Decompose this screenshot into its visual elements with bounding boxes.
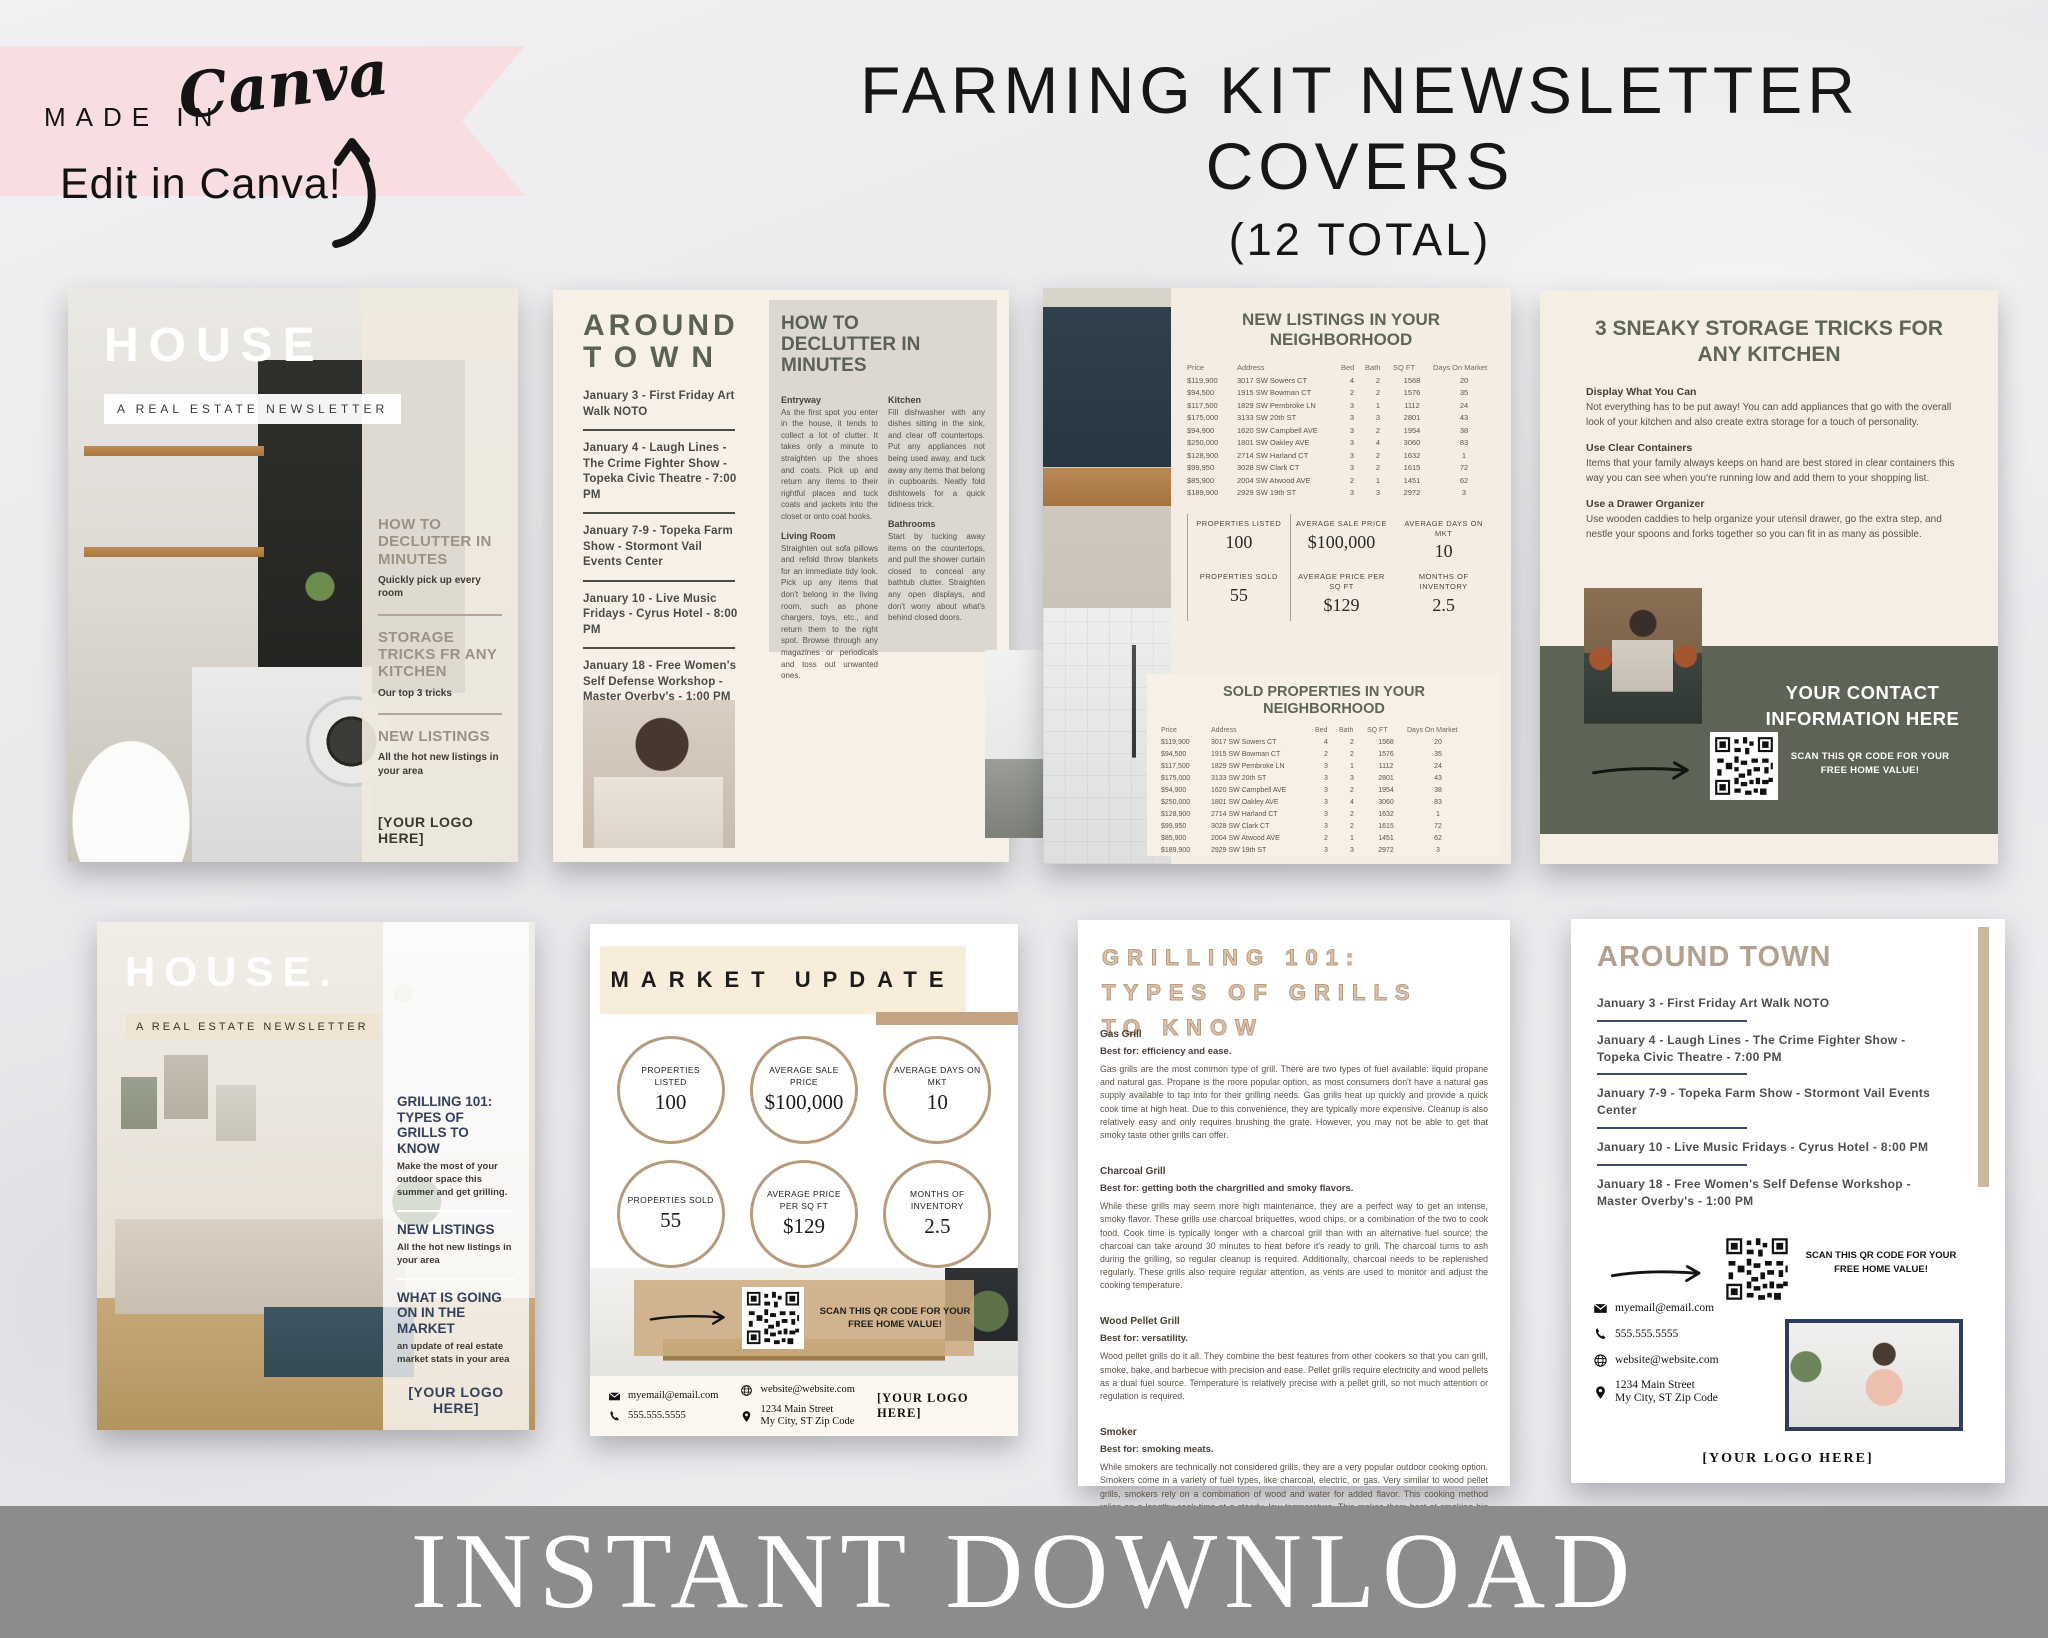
- cell-address: 3028 SW Clark CT: [1211, 821, 1313, 833]
- contact-footer: myemail@email.com 555.555.5555 website@w…: [590, 1376, 1018, 1436]
- stat-value: 10: [927, 1090, 948, 1115]
- listing-title: FARMING KIT NEWSLETTER COVERS: [740, 52, 1980, 204]
- article-columns: Entryway As the first spot you enter in …: [781, 387, 985, 682]
- divider: [583, 647, 735, 649]
- cell-price: $250,000: [1187, 437, 1235, 450]
- tip-body: Items that your family always keeps on h…: [1586, 456, 1958, 486]
- section-heading: Kitchen: [888, 395, 985, 405]
- cell-bed: 3: [1341, 437, 1363, 450]
- event-item: January 4 - Laugh Lines - The Crime Figh…: [583, 441, 743, 514]
- newsletter-page-storage-tricks: 3 SNEAKY STORAGE TRICKS FOR ANY KITCHEN …: [1540, 290, 1998, 864]
- table-row: $99,950 3028 SW Clark CT 3 2 1615 72: [1187, 462, 1495, 475]
- contact-website: website@website.com: [740, 1384, 855, 1397]
- stat-label: AVERAGE DAYS ON MKT: [894, 1065, 981, 1087]
- article-title: HOW TO DECLUTTER IN MINUTES: [781, 314, 969, 377]
- cell-bath: 2: [1365, 450, 1391, 463]
- table-row: $117,500 1829 SW Pembroke LN 3 1 1112 24: [1161, 761, 1487, 773]
- table-row: $128,900 2714 SW Harland CT 3 2 1632 1: [1161, 809, 1487, 821]
- canva-logo-script: Canva: [174, 35, 392, 133]
- qr-caption: SCAN THIS QR CODE FOR YOUR FREE HOME VAL…: [1799, 1249, 1963, 1277]
- cover-sidebar-overlay: GRILLING 101: TYPES OF GRILLS TO KNOW Ma…: [383, 922, 529, 1430]
- event-text: January 3 - First Friday Art Walk NOTO: [583, 389, 743, 420]
- event-text: January 10 - Live Music Fridays - Cyrus …: [1597, 1139, 1949, 1156]
- email-text: myemail@email.com: [628, 1390, 718, 1402]
- cell-sqft: 2972: [1393, 487, 1431, 500]
- edit-in-canva-label: Edit in Canva!: [60, 160, 342, 209]
- grill-best-for: Best for: getting both the chargrilled a…: [1100, 1183, 1488, 1194]
- cell-address: 2004 SW Atwood AVE: [1211, 833, 1313, 845]
- cell-price: $128,900: [1187, 450, 1235, 463]
- map-pin-icon: [740, 1410, 753, 1423]
- map-pin-icon: [1593, 1385, 1608, 1400]
- teaser-heading: NEW LISTINGS: [397, 1222, 515, 1238]
- stat-label: AVERAGE SALE PRICE: [1295, 519, 1389, 529]
- masthead: HOUSE.: [125, 948, 340, 996]
- cell-days: 1: [1433, 450, 1495, 463]
- instant-download-banner: INSTANT DOWNLOAD: [0, 1506, 2048, 1638]
- cell-days: 83: [1407, 797, 1469, 809]
- stat-circle: MONTHS OF INVENTORY 2.5: [883, 1160, 991, 1268]
- cell-days: 72: [1407, 821, 1469, 833]
- stat-label: AVERAGE PRICE PER SQ FT: [1295, 572, 1389, 592]
- contact-banner: YOUR CONTACT INFORMATION HERE: [1745, 680, 1980, 732]
- sidebar-teaser: STORAGE TRICKS FR ANY KITCHEN Our top 3 …: [378, 629, 502, 715]
- cell-price: $94,500: [1161, 749, 1209, 761]
- cell-price: $128,900: [1161, 809, 1209, 821]
- newsletter-cover-declutter: HOW TO DECLUTTER IN MINUTES Quickly pick…: [68, 288, 518, 862]
- cell-days: 24: [1433, 400, 1495, 413]
- cell-bath: 2: [1339, 821, 1365, 833]
- banner-line2: INFORMATION HERE: [1745, 706, 1980, 732]
- section-body: As the first spot you enter in the house…: [781, 407, 878, 523]
- column-header: Price: [1187, 361, 1235, 375]
- cell-address: 1829 SW Pembroke LN: [1237, 400, 1339, 413]
- grill-heading: Charcoal Grill: [1100, 1166, 1488, 1177]
- cell-address: 3017 SW Sowers CT: [1211, 737, 1313, 749]
- cell-bath: 3: [1365, 412, 1391, 425]
- divider: [1597, 1164, 1747, 1166]
- stat-label: PROPERTIES SOLD: [627, 1195, 714, 1206]
- teaser-heading: STORAGE TRICKS FR ANY KITCHEN: [378, 629, 502, 681]
- cell-bed: 3: [1315, 773, 1337, 785]
- stat-circle: PROPERTIES LISTED 100: [617, 1036, 725, 1144]
- cell-days: 20: [1433, 375, 1495, 388]
- cell-bed: 3: [1315, 797, 1337, 809]
- table-row: $250,000 1801 SW Oakley AVE 3 4 3060 83: [1187, 437, 1495, 450]
- cell-address: 1829 SW Pembroke LN: [1211, 761, 1313, 773]
- contact-phone: 555.555.5555: [1593, 1327, 1793, 1342]
- contact-phone: 555.555.5555: [608, 1410, 718, 1423]
- stat-label: PROPERTIES LISTED: [627, 1065, 714, 1087]
- teaser-subtext: an update of real estate market stats in…: [397, 1341, 515, 1367]
- email-text: myemail@email.com: [1615, 1302, 1714, 1315]
- cell-address: 1801 SW Oakley AVE: [1237, 437, 1339, 450]
- events-column: AROUND TOWN January 3 - First Friday Art…: [553, 290, 763, 862]
- newsletter-page-market-update: MARKET UPDATE PROPERTIES LISTED 100 AVER…: [590, 924, 1018, 1436]
- cell-sqft: 3060: [1367, 797, 1405, 809]
- cell-bath: 1: [1365, 400, 1391, 413]
- stat-value: 55: [1192, 585, 1286, 606]
- event-text: January 3 - First Friday Art Walk NOTO: [1597, 995, 1949, 1012]
- tip-heading: Use a Drawer Organizer: [1586, 498, 1958, 510]
- article-section: Kitchen Fill dishwasher with any dishes …: [888, 395, 985, 511]
- stat-circle: AVERAGE PRICE PER SQ FT $129: [750, 1160, 858, 1268]
- grill-section: Charcoal Grill Best for: getting both th…: [1078, 1157, 1510, 1301]
- column-header: SQ FT: [1393, 361, 1431, 375]
- cell-bath: 2: [1365, 425, 1391, 438]
- new-listings-table: PriceAddressBedBathSQ FTDays On Market $…: [1187, 361, 1495, 500]
- globe-icon: [740, 1384, 753, 1397]
- cell-price: $117,500: [1161, 761, 1209, 773]
- cell-price: $94,900: [1187, 425, 1235, 438]
- contact-list: myemail@email.com 555.555.5555 website@w…: [1593, 1301, 1793, 1405]
- event-text: January 7-9 - Topeka Farm Show - Stormon…: [1597, 1085, 1949, 1119]
- stat-label: MONTHS OF INVENTORY: [894, 1189, 981, 1211]
- cell-address: 2004 SW Atwood AVE: [1237, 475, 1339, 488]
- tip-heading: Use Clear Containers: [1586, 442, 1958, 454]
- cell-price: $175,000: [1161, 773, 1209, 785]
- cell-price: $119,900: [1187, 375, 1235, 388]
- teaser-subtext: Our top 3 tricks: [378, 687, 502, 701]
- column-header: Bath: [1365, 361, 1391, 375]
- cell-bath: 3: [1339, 773, 1365, 785]
- cell-address: 1620 SW Campbell AVE: [1237, 425, 1339, 438]
- sidebar-teaser: HOW TO DECLUTTER IN MINUTES Quickly pick…: [378, 516, 502, 616]
- grill-body: While these grills may seem more high ma…: [1100, 1200, 1488, 1292]
- cell-bed: 3: [1341, 400, 1363, 413]
- divider: [378, 713, 502, 715]
- qr-code: [742, 1287, 804, 1349]
- stat-circle: PROPERTIES SOLD 55: [617, 1160, 725, 1268]
- sold-properties-table: PriceAddressBedBathSQ FTDays On Market $…: [1161, 725, 1487, 857]
- cell-bath: 2: [1365, 387, 1391, 400]
- event-text: January 7-9 - Topeka Farm Show - Stormon…: [583, 524, 743, 571]
- section-heading: Bathrooms: [888, 519, 985, 529]
- newsletter-page-around-town-contact: AROUND TOWN January 3 - First Friday Art…: [1571, 919, 2005, 1483]
- cell-days: 62: [1407, 833, 1469, 845]
- divider: [583, 512, 735, 514]
- cell-price: $85,900: [1187, 475, 1235, 488]
- stat-item: PROPERTIES SOLD 55: [1187, 567, 1290, 621]
- cell-bath: 2: [1339, 749, 1365, 761]
- cell-price: $94,500: [1187, 387, 1235, 400]
- divider: [1597, 1020, 1747, 1022]
- cell-sqft: 1632: [1393, 450, 1431, 463]
- events-list: January 3 - First Friday Art Walk NOTO J…: [1597, 995, 1949, 1209]
- address-line1: 1234 Main Street: [1615, 1379, 1695, 1391]
- tip-item: Display What You Can Not everything has …: [1586, 386, 1958, 430]
- cell-bed: 3: [1315, 809, 1337, 821]
- teaser-subtext: All the hot new listings in your area: [397, 1242, 515, 1268]
- cell-sqft: 1568: [1367, 737, 1405, 749]
- cell-days: 62: [1433, 475, 1495, 488]
- table-row: $189,900 2929 SW 19th ST 3 3 2972 3: [1161, 845, 1487, 857]
- address-line1: 1234 Main Street: [760, 1404, 833, 1415]
- sidebar-teaser: NEW LISTINGS All the hot new listings in…: [397, 1222, 515, 1280]
- event-text: January 4 - Laugh Lines - The Crime Figh…: [583, 441, 743, 503]
- cell-bath: 1: [1339, 833, 1365, 845]
- article-section: Entryway As the first spot you enter in …: [781, 395, 878, 523]
- contact-email: myemail@email.com: [1593, 1301, 1793, 1316]
- cell-address: 1915 SW Bowman CT: [1211, 749, 1313, 761]
- table-row: $94,500 1915 SW Bowman CT 2 2 1576 35: [1187, 387, 1495, 400]
- curved-arrow-icon: [318, 132, 388, 252]
- sidebar-teaser: NEW LISTINGS All the hot new listings in…: [378, 728, 502, 778]
- cell-address: 3017 SW Sowers CT: [1237, 375, 1339, 388]
- grill-section: Wood Pellet Grill Best for: versatility.…: [1078, 1307, 1510, 1412]
- event-item: January 10 - Live Music Fridays - Cyrus …: [1597, 1139, 1949, 1166]
- cell-bed: 3: [1315, 785, 1337, 797]
- table-row: $117,500 1829 SW Pembroke LN 3 1 1112 24: [1187, 400, 1495, 413]
- qr-caption: SCAN THIS QR CODE FOR YOUR FREE HOME VAL…: [1786, 750, 1954, 778]
- column-header: Bath: [1339, 725, 1365, 737]
- table-body: $119,900 3017 SW Sowers CT 4 2 1568 20 $…: [1187, 375, 1495, 500]
- tagline-banner: A REAL ESTATE NEWSLETTER: [104, 394, 401, 424]
- cell-bath: 1: [1339, 761, 1365, 773]
- sidebar-teaser: GRILLING 101: TYPES OF GRILLS TO KNOW Ma…: [397, 1094, 515, 1212]
- column-header: Address: [1211, 725, 1313, 737]
- table-row: $175,000 3133 SW 20th ST 3 3 2801 43: [1161, 773, 1487, 785]
- article-col-1: Entryway As the first spot you enter in …: [781, 387, 878, 682]
- logo-placeholder: [YOUR LOGO HERE]: [877, 1391, 1000, 1421]
- table-row: $119,900 3017 SW Sowers CT 4 2 1568 20: [1161, 737, 1487, 749]
- grill-best-for: Best for: efficiency and ease.: [1100, 1046, 1488, 1057]
- cell-address: 3133 SW 20th ST: [1237, 412, 1339, 425]
- event-item: January 3 - First Friday Art Walk NOTO: [583, 389, 743, 431]
- cell-address: 2929 SW 19th ST: [1211, 845, 1313, 857]
- cell-sqft: 1954: [1367, 785, 1405, 797]
- cell-bath: 3: [1365, 487, 1391, 500]
- tip-body: Use wooden caddies to help organize your…: [1586, 512, 1958, 542]
- stat-label: AVERAGE DAYS ON MKT: [1396, 519, 1491, 539]
- cell-sqft: 2801: [1367, 773, 1405, 785]
- sidebar-teaser: WHAT IS GOING ON IN THE MARKET an update…: [397, 1290, 515, 1367]
- woman-laptop-photo: [583, 700, 735, 848]
- newsletter-cover-grilling: GRILLING 101: TYPES OF GRILLS TO KNOW Ma…: [97, 922, 535, 1430]
- teaser-subtext: Make the most of your outdoor space this…: [397, 1161, 515, 1199]
- event-item: January 4 - Laugh Lines - The Crime Figh…: [1597, 1032, 1949, 1076]
- tip-heading: Display What You Can: [1586, 386, 1958, 398]
- phone-icon: [608, 1410, 621, 1423]
- instant-download-text: INSTANT DOWNLOAD: [411, 1510, 1637, 1634]
- cell-price: $117,500: [1187, 400, 1235, 413]
- table-row: $119,900 3017 SW Sowers CT 4 2 1568 20: [1187, 375, 1495, 388]
- logo-placeholder: [YOUR LOGO HERE]: [1571, 1451, 2005, 1467]
- cell-price: $85,900: [1161, 833, 1209, 845]
- cell-bath: 2: [1339, 785, 1365, 797]
- table-row: $128,900 2714 SW Harland CT 3 2 1632 1: [1187, 450, 1495, 463]
- around-town-heading: AROUND TOWN: [583, 310, 763, 373]
- events-list: January 3 - First Friday Art Walk NOTO J…: [583, 389, 743, 706]
- event-text: January 10 - Live Music Fridays - Cyrus …: [583, 592, 743, 639]
- teaser-heading: WHAT IS GOING ON IN THE MARKET: [397, 1290, 515, 1337]
- agent-photo: [1785, 1319, 1963, 1431]
- address-text: 1234 Main StreetMy City, ST Zip Code: [1615, 1379, 1718, 1405]
- agent-photo: [1584, 588, 1702, 724]
- sidebar-teaser-list: HOW TO DECLUTTER IN MINUTES Quickly pick…: [378, 516, 502, 778]
- teaser-subtext: All the hot new listings in your area: [378, 751, 502, 778]
- arrow-icon: [1609, 1261, 1709, 1287]
- table-row: $99,950 3028 SW Clark CT 3 2 1615 72: [1161, 821, 1487, 833]
- contact-address: 1234 Main StreetMy City, ST Zip Code: [740, 1404, 855, 1428]
- cell-days: 3: [1407, 845, 1469, 857]
- grill-best-for: Best for: versatility.: [1100, 1333, 1488, 1344]
- qr-code: [1721, 1233, 1793, 1305]
- table-row: $175,000 3133 SW 20th ST 3 3 2801 43: [1187, 412, 1495, 425]
- table-row: $250,000 1801 SW Oakley AVE 3 4 3060 83: [1161, 797, 1487, 809]
- stat-item: AVERAGE DAYS ON MKT 10: [1392, 514, 1495, 568]
- cell-bath: 2: [1365, 375, 1391, 388]
- stat-circle: AVERAGE SALE PRICE $100,000: [750, 1036, 858, 1144]
- stat-value: $100,000: [1295, 532, 1389, 553]
- grill-heading: Smoker: [1100, 1427, 1488, 1438]
- column-header: Days On Market: [1433, 361, 1495, 375]
- divider: [1597, 1127, 1747, 1129]
- article-col-2: Kitchen Fill dishwasher with any dishes …: [888, 387, 985, 682]
- stat-label: AVERAGE PRICE PER SQ FT: [761, 1189, 848, 1211]
- stat-value: 100: [1192, 532, 1286, 553]
- cell-bath: 2: [1365, 462, 1391, 475]
- cell-bath: 3: [1339, 845, 1365, 857]
- cell-sqft: 1615: [1367, 821, 1405, 833]
- envelope-icon: [1593, 1301, 1608, 1316]
- cell-sqft: 2972: [1367, 845, 1405, 857]
- arrow-icon: [1590, 758, 1698, 784]
- cell-sqft: 1632: [1367, 809, 1405, 821]
- cell-days: 3: [1433, 487, 1495, 500]
- cell-sqft: 1451: [1367, 833, 1405, 845]
- banner-line1: YOUR CONTACT: [1745, 680, 1980, 706]
- cell-bed: 3: [1341, 487, 1363, 500]
- table-row: $94,900 1620 SW Campbell AVE 3 2 1954 38: [1161, 785, 1487, 797]
- table-header-row: PriceAddressBedBathSQ FTDays On Market: [1161, 725, 1487, 737]
- stat-value: 55: [660, 1208, 681, 1233]
- cell-days: 20: [1407, 737, 1469, 749]
- cell-price: $175,000: [1187, 412, 1235, 425]
- column-header: Address: [1237, 361, 1339, 375]
- stat-label: PROPERTIES LISTED: [1192, 519, 1286, 529]
- event-text: January 4 - Laugh Lines - The Crime Figh…: [1597, 1032, 1949, 1066]
- cell-bed: 3: [1341, 412, 1363, 425]
- listing-subtitle: (12 TOTAL): [740, 214, 1980, 266]
- cell-days: 38: [1433, 425, 1495, 438]
- phone-text: 555.555.5555: [628, 1410, 686, 1422]
- cell-address: 2714 SW Harland CT: [1211, 809, 1313, 821]
- tip-item: Use a Drawer Organizer Use wooden caddie…: [1586, 498, 1958, 542]
- cell-days: 1: [1407, 809, 1469, 821]
- table-row: $94,500 1915 SW Bowman CT 2 2 1576 35: [1161, 749, 1487, 761]
- kitchen-photo: [1043, 288, 1171, 608]
- section-heading: Living Room: [781, 531, 878, 541]
- accent-bar: [876, 1012, 1018, 1025]
- cell-bed: 3: [1341, 450, 1363, 463]
- grill-section: Gas Grill Best for: efficiency and ease.…: [1078, 1020, 1510, 1151]
- stat-value: $129: [783, 1214, 825, 1239]
- arrow-icon: [648, 1307, 732, 1329]
- cell-address: 3028 SW Clark CT: [1237, 462, 1339, 475]
- cell-bed: 2: [1341, 475, 1363, 488]
- cell-bath: 4: [1365, 437, 1391, 450]
- article-section: Living Room Straighten out sofa pillows …: [781, 531, 878, 682]
- new-listings-section: NEW LISTINGS IN YOUR NEIGHBORHOOD PriceA…: [1171, 288, 1511, 639]
- page-title: MARKET UPDATE: [610, 967, 955, 993]
- event-item: January 7-9 - Topeka Farm Show - Stormon…: [583, 524, 743, 582]
- tip-item: Use Clear Containers Items that your fam…: [1586, 442, 1958, 486]
- cell-address: 1801 SW Oakley AVE: [1211, 797, 1313, 809]
- divider: [583, 429, 735, 431]
- cell-sqft: 1568: [1393, 375, 1431, 388]
- stat-value: $129: [1295, 595, 1389, 616]
- new-listings-title: NEW LISTINGS IN YOUR NEIGHBORHOOD: [1205, 310, 1476, 351]
- contact-address: 1234 Main StreetMy City, ST Zip Code: [1593, 1379, 1793, 1405]
- stat-label: AVERAGE SALE PRICE: [761, 1065, 848, 1087]
- stat-item: PROPERTIES LISTED 100: [1187, 514, 1290, 568]
- grill-heading: Wood Pellet Grill: [1100, 1316, 1488, 1327]
- grill-best-for: Best for: smoking meats.: [1100, 1444, 1488, 1455]
- sidebar-teaser-list: GRILLING 101: TYPES OF GRILLS TO KNOW Ma…: [397, 1094, 515, 1367]
- divider: [397, 1278, 515, 1280]
- cell-sqft: 1112: [1393, 400, 1431, 413]
- stat-value: 100: [655, 1090, 687, 1115]
- cell-bath: 1: [1365, 475, 1391, 488]
- table-row: $85,900 2004 SW Atwood AVE 2 1 1451 62: [1161, 833, 1487, 845]
- column-header: SQ FT: [1367, 725, 1405, 737]
- event-text: January 18 - Free Women's Self Defense W…: [583, 659, 743, 706]
- qr-overlay-band: SCAN THIS QR CODE FOR YOUR FREE HOME VAL…: [634, 1280, 974, 1356]
- cell-sqft: 1576: [1393, 387, 1431, 400]
- website-text: website@website.com: [1615, 1354, 1719, 1367]
- cell-bed: 4: [1341, 375, 1363, 388]
- accent-bar: [1978, 927, 1989, 1187]
- divider: [397, 1210, 515, 1212]
- cell-sqft: 1576: [1367, 749, 1405, 761]
- cell-sqft: 1451: [1393, 475, 1431, 488]
- logo-placeholder: [YOUR LOGO HERE]: [378, 814, 502, 846]
- cell-sqft: 2801: [1393, 412, 1431, 425]
- section-body: Straighten out sofa pillows and refold t…: [781, 543, 878, 682]
- divider: [378, 614, 502, 616]
- stat-value: 2.5: [924, 1214, 950, 1239]
- newsletter-page-around-town: AROUND TOWN January 3 - First Friday Art…: [553, 290, 1009, 862]
- cell-address: 3133 SW 20th ST: [1211, 773, 1313, 785]
- page-title: AROUND TOWN: [1597, 941, 1831, 974]
- cell-price: $250,000: [1161, 797, 1209, 809]
- event-item: January 7-9 - Topeka Farm Show - Stormon…: [1597, 1085, 1949, 1129]
- cell-address: 1620 SW Campbell AVE: [1211, 785, 1313, 797]
- masthead: HOUSE: [104, 318, 325, 373]
- cell-days: 24: [1407, 761, 1469, 773]
- event-item: January 18 - Free Women's Self Defense W…: [1597, 1176, 1949, 1210]
- cell-bed: 4: [1315, 737, 1337, 749]
- newsletter-page-grilling-101: GRILLING 101: TYPES OF GRILLS TO KNOW Ga…: [1078, 920, 1510, 1486]
- website-text: website@website.com: [760, 1384, 855, 1396]
- market-update-header: MARKET UPDATE: [600, 946, 966, 1014]
- stat-item: AVERAGE PRICE PER SQ FT $129: [1290, 567, 1393, 621]
- contact-email: myemail@email.com: [608, 1390, 718, 1403]
- sold-properties-card: SOLD PROPERTIES IN YOUR NEIGHBORHOOD Pri…: [1147, 674, 1501, 856]
- table-body: $119,900 3017 SW Sowers CT 4 2 1568 20 $…: [1161, 737, 1487, 857]
- cell-days: 43: [1433, 412, 1495, 425]
- cell-bed: 2: [1341, 387, 1363, 400]
- stat-item: MONTHS OF INVENTORY 2.5: [1392, 567, 1495, 621]
- article-panel: HOW TO DECLUTTER IN MINUTES Entryway As …: [769, 300, 997, 652]
- divider: [583, 580, 735, 582]
- cell-bed: 2: [1315, 749, 1337, 761]
- tagline-banner: A REAL ESTATE NEWSLETTER: [125, 1014, 380, 1040]
- grill-sections: Gas Grill Best for: efficiency and ease.…: [1078, 1020, 1510, 1478]
- column-header: Bed: [1315, 725, 1337, 737]
- stat-circle: AVERAGE DAYS ON MKT 10: [883, 1036, 991, 1144]
